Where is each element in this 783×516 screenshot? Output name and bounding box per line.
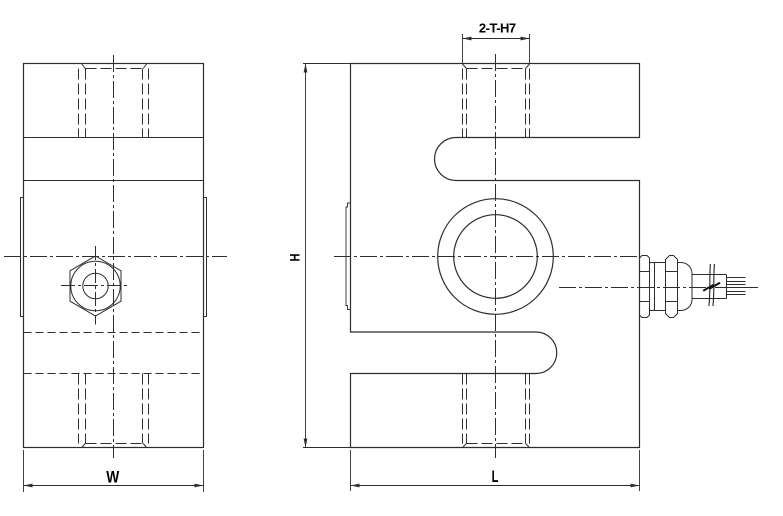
- svg-text:2-T-H7: 2-T-H7: [479, 21, 516, 36]
- svg-text:H: H: [286, 254, 302, 262]
- svg-text:W: W: [106, 468, 119, 486]
- svg-text:L: L: [492, 468, 499, 486]
